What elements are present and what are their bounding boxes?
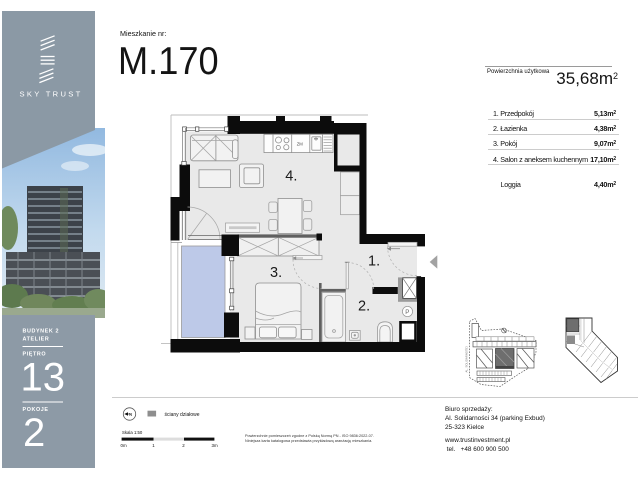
svg-text:N: N xyxy=(129,412,132,417)
svg-text:0m: 0m xyxy=(121,443,127,448)
svg-text:Skala 1:50: Skala 1:50 xyxy=(122,430,143,435)
svg-text:ściany działowe: ściany działowe xyxy=(165,412,200,418)
svg-text:1: 1 xyxy=(152,443,155,448)
svg-text:3m: 3m xyxy=(212,443,218,448)
svg-text:2: 2 xyxy=(182,443,185,448)
